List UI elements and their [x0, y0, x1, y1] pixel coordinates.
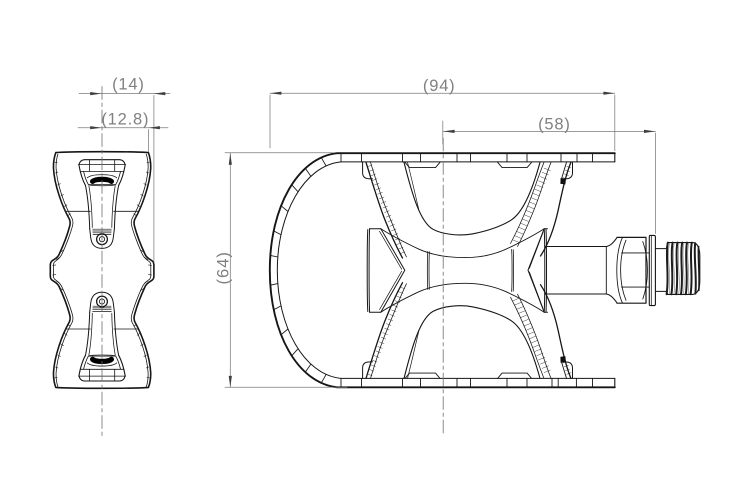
svg-text:(94): (94) — [423, 77, 456, 95]
svg-text:(58): (58) — [538, 115, 571, 133]
svg-text:(12.8): (12.8) — [101, 111, 149, 129]
svg-text:(64): (64) — [215, 251, 233, 284]
svg-text:(14): (14) — [112, 76, 145, 94]
